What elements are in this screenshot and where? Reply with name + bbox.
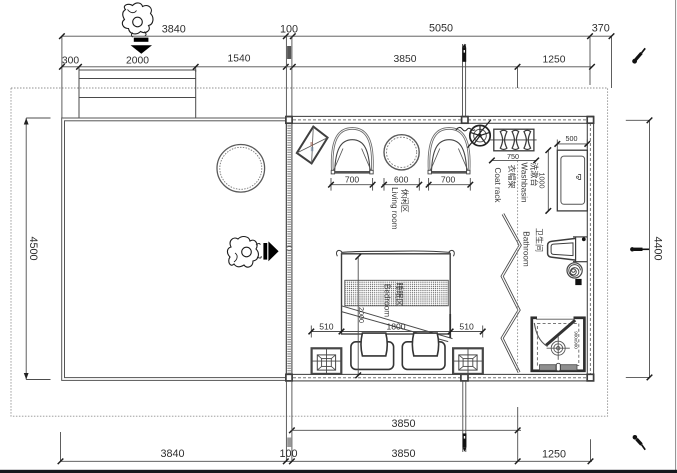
svg-text:510: 510: [319, 321, 334, 331]
svg-text:100: 100: [280, 23, 298, 35]
svg-text:370: 370: [592, 23, 610, 35]
svg-text:Washbasin: Washbasin: [520, 162, 529, 203]
svg-text:700: 700: [441, 175, 456, 185]
svg-text:700: 700: [345, 175, 360, 185]
svg-text:3840: 3840: [160, 448, 184, 460]
svg-text:2000: 2000: [357, 307, 366, 323]
svg-text:洗漱台: 洗漱台: [529, 163, 539, 187]
svg-text:100: 100: [279, 448, 297, 460]
svg-text:1540: 1540: [228, 53, 251, 64]
svg-text:1800: 1800: [386, 321, 405, 331]
svg-text:5050: 5050: [429, 23, 453, 35]
svg-text:Living room: Living room: [390, 187, 399, 230]
svg-text:卫生间: 卫生间: [535, 228, 545, 252]
svg-text:3850: 3850: [391, 418, 415, 430]
svg-text:1250: 1250: [542, 449, 566, 461]
svg-text:900x900: 900x900: [574, 331, 579, 349]
svg-text:2000: 2000: [126, 55, 149, 66]
svg-text:睡眠区: 睡眠区: [394, 283, 403, 307]
svg-text:衣帽架: 衣帽架: [507, 165, 517, 189]
svg-text:休闲区: 休闲区: [400, 189, 410, 213]
svg-text:750: 750: [507, 152, 519, 161]
svg-text:500: 500: [566, 134, 578, 143]
svg-text:4500: 4500: [27, 236, 39, 260]
svg-text:Coat rack: Coat rack: [493, 167, 502, 203]
svg-text:4400: 4400: [652, 236, 664, 260]
svg-text:1250: 1250: [543, 55, 566, 66]
svg-text:3840: 3840: [162, 23, 186, 35]
svg-text:600: 600: [394, 175, 409, 185]
svg-text:300: 300: [62, 55, 79, 66]
svg-text:3850: 3850: [394, 54, 417, 65]
svg-text:510: 510: [459, 321, 474, 331]
svg-text:3850: 3850: [391, 448, 415, 460]
svg-text:Bedroom: Bedroom: [383, 284, 392, 317]
svg-text:Bathroom: Bathroom: [521, 231, 530, 267]
